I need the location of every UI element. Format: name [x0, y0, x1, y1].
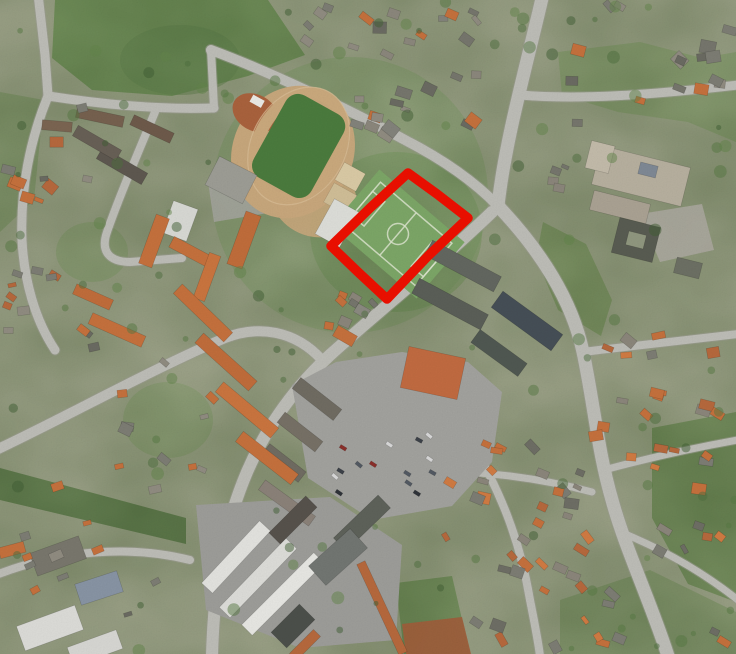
aerial-photo — [0, 0, 736, 654]
grain — [0, 0, 736, 654]
aerial-map-view — [0, 0, 736, 654]
photo-grain — [0, 0, 736, 654]
